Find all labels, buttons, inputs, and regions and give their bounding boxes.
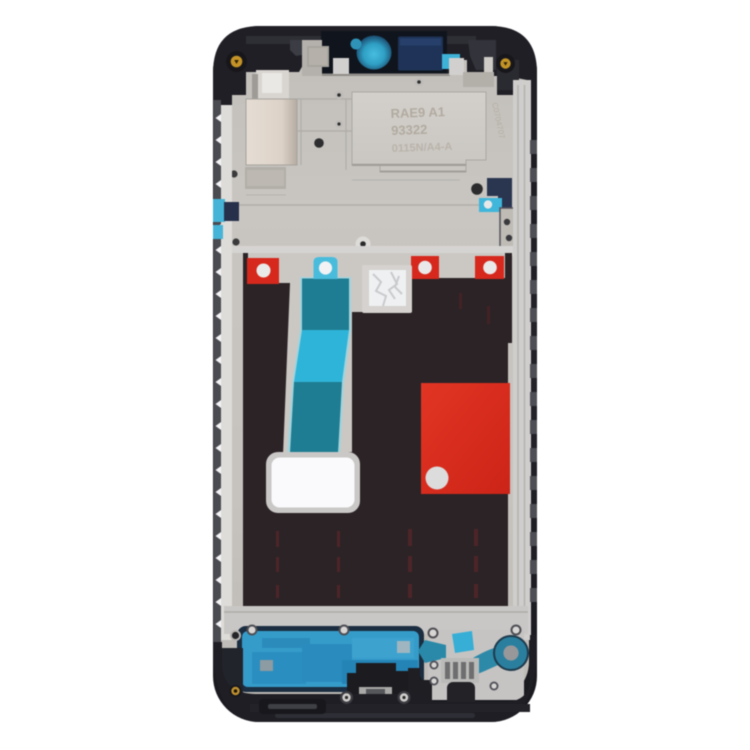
svg-text:93322: 93322 — [391, 122, 428, 138]
svg-text:0115N/A4-A: 0115N/A4-A — [392, 141, 453, 155]
svg-text:RAE9 A1: RAE9 A1 — [390, 104, 445, 121]
